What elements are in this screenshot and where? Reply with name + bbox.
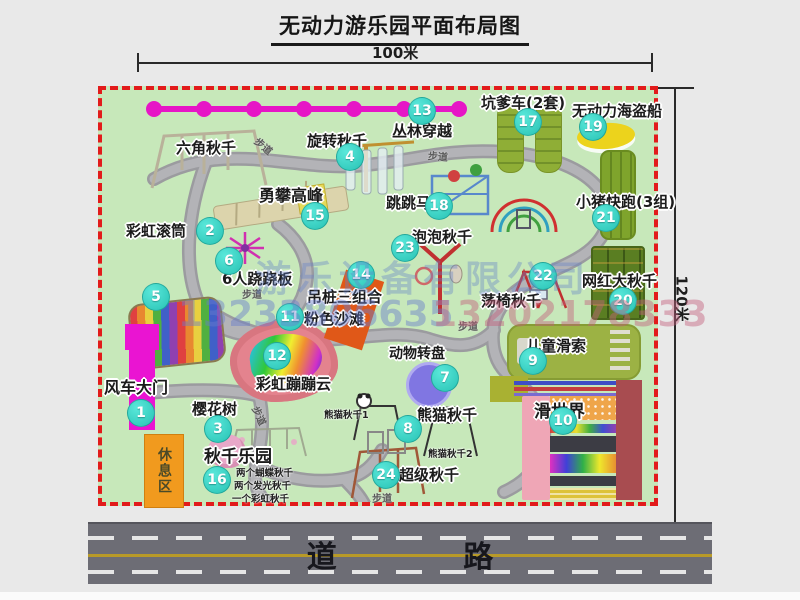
badge-7: 7 <box>431 364 459 392</box>
page-title: 无动力游乐园平面布局图 <box>271 10 529 46</box>
badge-19: 19 <box>579 113 607 141</box>
bottom-margin <box>0 592 800 600</box>
badge-13: 13 <box>408 97 436 125</box>
slide-world-right-tower <box>616 380 642 500</box>
page-title-wrap: 无动力游乐园平面布局图 <box>0 10 800 46</box>
height-dimension-label: 120米 <box>672 269 693 329</box>
label-swing-paradise: 秋千乐园 <box>204 442 272 467</box>
badge-18: 18 <box>425 192 453 220</box>
badge-4: 4 <box>336 143 364 171</box>
badge-24: 24 <box>372 461 400 489</box>
sublabel-panda-swing-2: 熊猫秋千2 <box>428 446 473 460</box>
right-dimension-tick-top <box>656 87 694 89</box>
label-hanging-posts: 吊桩三组合 <box>307 286 382 307</box>
badge-1: 1 <box>127 399 155 427</box>
sublabel-panda-swing-1: 熊猫秋千1 <box>324 407 369 421</box>
badge-16: 16 <box>203 466 231 494</box>
badge-10: 10 <box>549 407 577 435</box>
slide-yellow-band <box>550 488 616 500</box>
zipline-node <box>296 101 312 117</box>
park-map-poster: 无动力游乐园平面布局图 100米 120米 <box>0 0 800 600</box>
zipline-node <box>346 101 362 117</box>
road: 道 路 <box>88 522 712 584</box>
zipline-node <box>196 101 212 117</box>
zipline-node <box>146 101 162 117</box>
badge-23: 23 <box>391 234 419 262</box>
road-label: 道 路 <box>88 524 712 584</box>
label-animal-turntable: 动物转盘 <box>389 343 445 363</box>
badge-2: 2 <box>196 217 224 245</box>
walkway-label: 步道 <box>458 318 478 333</box>
badge-20: 20 <box>609 287 637 315</box>
label-pig-run: 小猪快跑(3组) <box>576 191 675 212</box>
label-pink-beach: 粉色沙滩 <box>304 308 364 329</box>
label-bubble-swing: 泡泡秋千 <box>412 226 472 247</box>
park-map-area: 休息区 步道 步道 步道 步道 步道 步道 步道 <box>98 86 658 506</box>
badge-8: 8 <box>394 415 422 443</box>
label-super-swing: 超级秋千 <box>399 464 459 485</box>
rest-area-label: 休息区 <box>154 447 174 495</box>
label-rainbow-cloud: 彩虹蹦蹦云 <box>256 373 331 394</box>
badge-6: 6 <box>215 247 243 275</box>
kids-zipline-ladder <box>610 330 630 370</box>
rest-area-box: 休息区 <box>144 434 184 508</box>
badge-11: 11 <box>276 303 304 331</box>
badge-3: 3 <box>204 415 232 443</box>
walkway-label: 步道 <box>372 490 392 505</box>
badge-12: 12 <box>263 342 291 370</box>
badge-17: 17 <box>514 108 542 136</box>
bubble-swing-icon <box>416 244 462 314</box>
zipline-node <box>246 101 262 117</box>
sublabel-rainbow-swing: 一个彩虹秋千 <box>232 491 289 505</box>
badge-5: 5 <box>142 283 170 311</box>
slide-rainbow-band <box>550 454 616 473</box>
slide-dark-band <box>550 476 616 486</box>
label-windmill-gate: 风车大门 <box>104 374 168 398</box>
zipline-node <box>451 101 467 117</box>
label-swing-chair: 荡椅秋千 <box>481 290 541 311</box>
slide-dark-band <box>550 436 616 452</box>
badge-21: 21 <box>592 204 620 232</box>
label-panda-swing: 熊猫秋千 <box>417 404 477 425</box>
sublabel-butterfly-swings: 两个蝴蝶秋千 <box>236 465 293 479</box>
badge-22: 22 <box>529 262 557 290</box>
badge-9: 9 <box>519 347 547 375</box>
width-dimension-label: 100米 <box>372 42 418 63</box>
rainbow-swing-icon <box>492 200 556 232</box>
top-dimension-tick-left <box>137 53 139 72</box>
walkway-label: 步道 <box>427 147 448 164</box>
sublabel-glow-swings: 两个发光秋千 <box>234 478 291 492</box>
badge-14: 14 <box>347 261 375 289</box>
label-rainbow-roller: 彩虹滚筒 <box>126 220 186 241</box>
label-hexagon-swing: 六角秋千 <box>176 137 236 158</box>
top-dimension-tick-right <box>651 53 653 72</box>
badge-15: 15 <box>301 202 329 230</box>
